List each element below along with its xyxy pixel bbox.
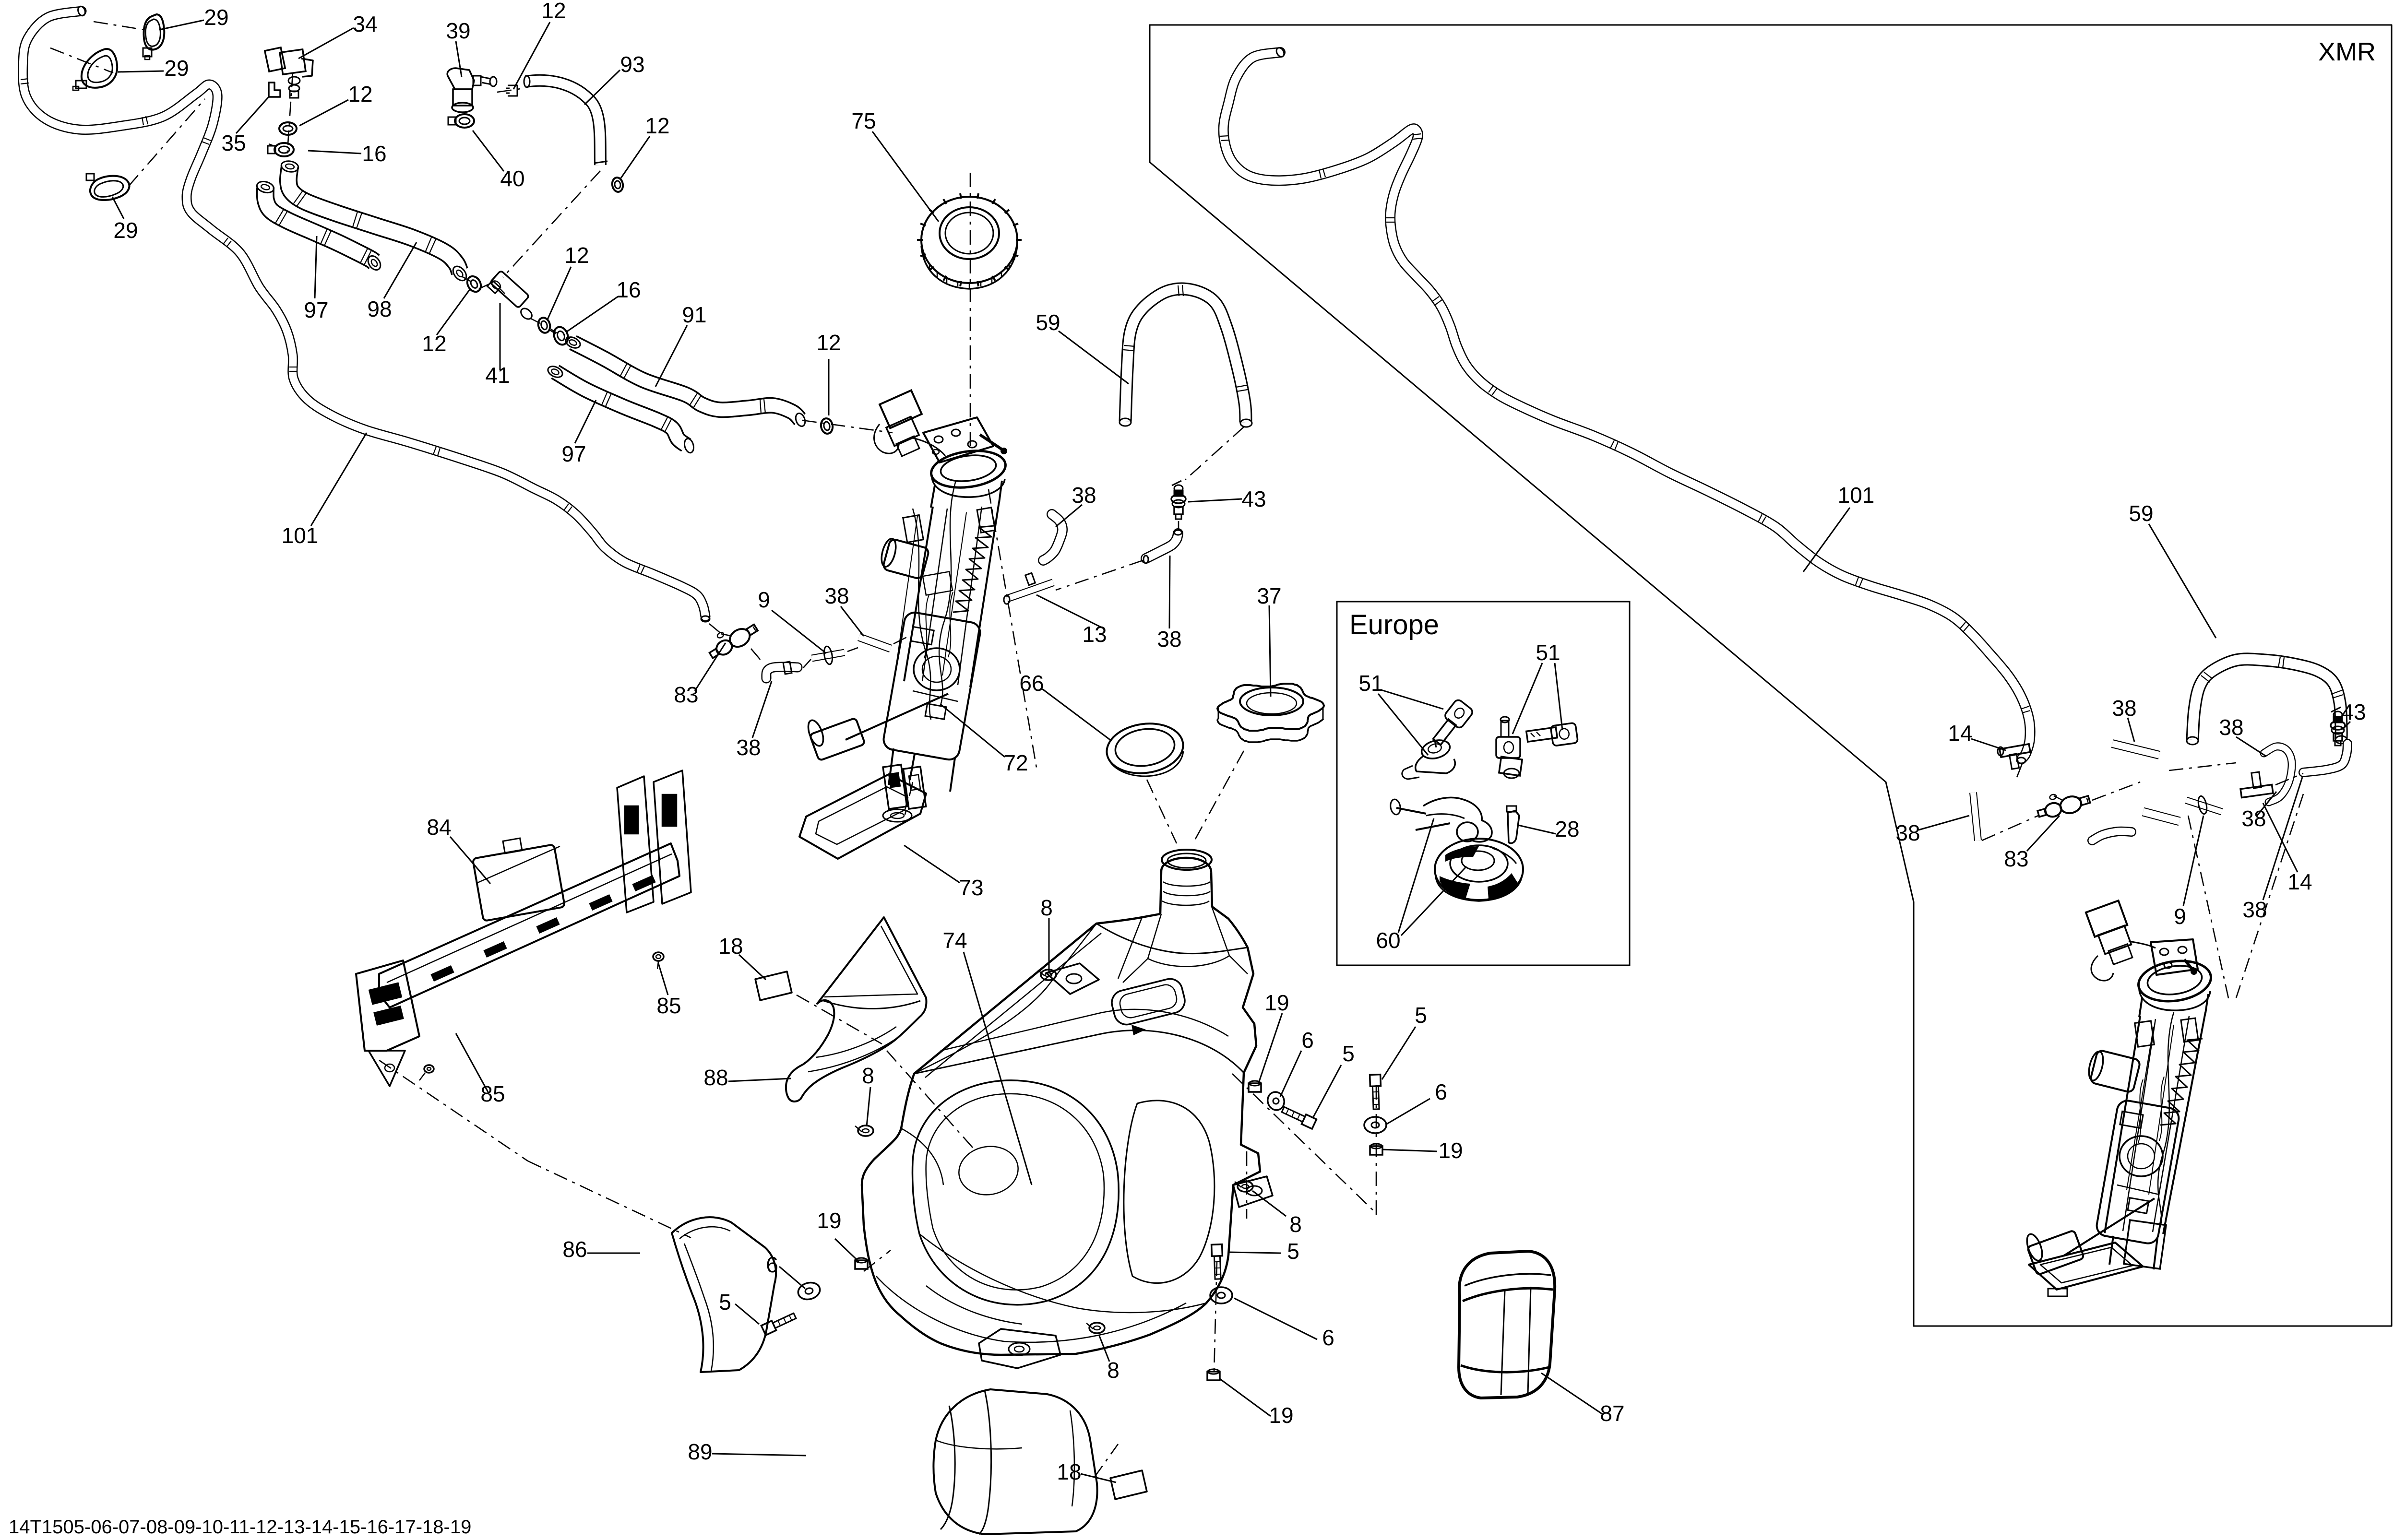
svg-text:28: 28 [1555, 817, 1579, 841]
svg-text:89: 89 [688, 1439, 712, 1464]
svg-text:86: 86 [562, 1237, 587, 1262]
svg-text:38: 38 [1895, 820, 1920, 845]
svg-text:18: 18 [718, 934, 743, 959]
svg-text:19: 19 [1269, 1403, 1293, 1428]
svg-text:8: 8 [1107, 1358, 1120, 1383]
svg-text:85: 85 [480, 1081, 505, 1106]
svg-text:19: 19 [1438, 1138, 1463, 1163]
svg-text:8: 8 [1289, 1212, 1302, 1237]
svg-text:38: 38 [2241, 806, 2266, 831]
svg-text:Europe: Europe [1349, 609, 1439, 640]
svg-text:35: 35 [221, 130, 246, 155]
svg-text:74: 74 [942, 928, 967, 953]
svg-text:93: 93 [620, 52, 644, 77]
svg-text:5: 5 [719, 1290, 731, 1315]
svg-text:XMR: XMR [2318, 37, 2376, 66]
svg-text:101: 101 [1838, 483, 1875, 508]
svg-text:12: 12 [645, 113, 669, 138]
svg-text:12: 12 [541, 0, 566, 23]
svg-text:5: 5 [1342, 1041, 1355, 1066]
svg-text:12: 12 [422, 331, 446, 356]
svg-text:8: 8 [862, 1063, 874, 1088]
svg-text:34: 34 [353, 12, 377, 36]
svg-text:43: 43 [1241, 486, 1266, 511]
svg-text:29: 29 [113, 218, 138, 243]
svg-text:12: 12 [816, 330, 841, 355]
svg-text:40: 40 [500, 166, 524, 191]
svg-text:66: 66 [1019, 671, 1044, 696]
svg-text:6: 6 [1301, 1028, 1314, 1053]
svg-text:6: 6 [1435, 1079, 1447, 1104]
svg-text:14T1505-06-07-08-09-10-11-12-1: 14T1505-06-07-08-09-10-11-12-13-14-15-16… [9, 1516, 471, 1538]
svg-text:59: 59 [2129, 501, 2153, 526]
svg-text:83: 83 [674, 682, 698, 707]
svg-text:75: 75 [851, 108, 876, 133]
svg-text:12: 12 [348, 82, 372, 107]
svg-text:6: 6 [1322, 1325, 1334, 1350]
svg-text:38: 38 [1157, 627, 1181, 652]
svg-text:84: 84 [427, 815, 451, 840]
svg-text:16: 16 [616, 277, 641, 302]
svg-text:60: 60 [1376, 928, 1400, 953]
svg-text:51: 51 [1536, 640, 1560, 665]
svg-text:6: 6 [766, 1252, 778, 1277]
svg-text:59: 59 [1036, 310, 1060, 335]
svg-text:98: 98 [367, 296, 392, 321]
svg-text:9: 9 [758, 587, 770, 612]
svg-text:9: 9 [2174, 904, 2186, 929]
svg-text:38: 38 [2112, 696, 2136, 721]
svg-text:18: 18 [1057, 1459, 1081, 1484]
svg-text:72: 72 [1003, 750, 1028, 775]
svg-text:14: 14 [1948, 721, 1972, 746]
svg-text:19: 19 [817, 1208, 841, 1233]
svg-text:41: 41 [485, 363, 510, 388]
svg-text:101: 101 [282, 523, 319, 548]
svg-text:85: 85 [656, 993, 681, 1018]
svg-text:38: 38 [824, 583, 849, 608]
svg-text:5: 5 [1287, 1239, 1299, 1264]
svg-text:29: 29 [164, 56, 189, 81]
svg-text:38: 38 [2219, 715, 2243, 740]
svg-text:97: 97 [561, 441, 586, 466]
svg-text:91: 91 [682, 302, 706, 327]
svg-text:13: 13 [1082, 622, 1107, 647]
svg-text:38: 38 [736, 735, 761, 760]
svg-text:51: 51 [1358, 671, 1383, 696]
svg-text:29: 29 [204, 5, 228, 30]
svg-text:39: 39 [446, 18, 470, 43]
svg-text:19: 19 [1264, 990, 1289, 1015]
svg-text:5: 5 [1415, 1003, 1427, 1028]
svg-text:37: 37 [1257, 583, 1281, 608]
svg-text:73: 73 [959, 875, 983, 900]
svg-text:87: 87 [1600, 1401, 1624, 1426]
svg-text:8: 8 [1040, 895, 1053, 920]
svg-text:43: 43 [2341, 699, 2366, 724]
svg-text:88: 88 [703, 1065, 728, 1090]
svg-text:83: 83 [2004, 846, 2028, 871]
svg-text:16: 16 [362, 141, 386, 166]
svg-text:38: 38 [2242, 897, 2267, 922]
svg-text:97: 97 [304, 297, 328, 322]
svg-text:12: 12 [564, 243, 589, 268]
svg-text:14: 14 [2287, 869, 2312, 894]
svg-text:38: 38 [1072, 483, 1096, 508]
